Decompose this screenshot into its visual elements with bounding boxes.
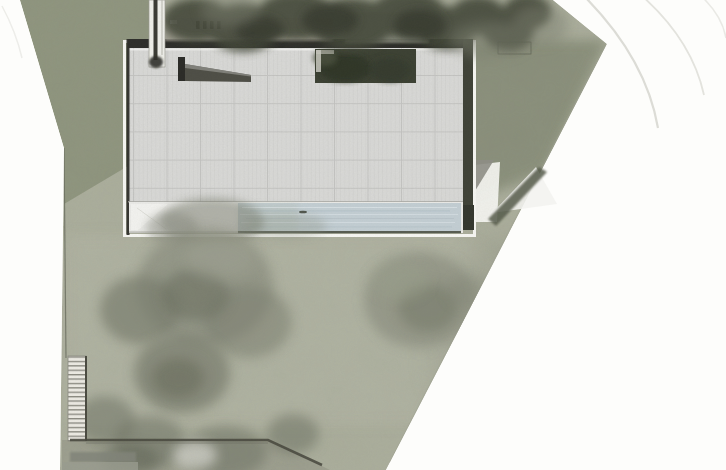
site-plan-canvas (0, 0, 726, 470)
site-plan (0, 0, 726, 470)
